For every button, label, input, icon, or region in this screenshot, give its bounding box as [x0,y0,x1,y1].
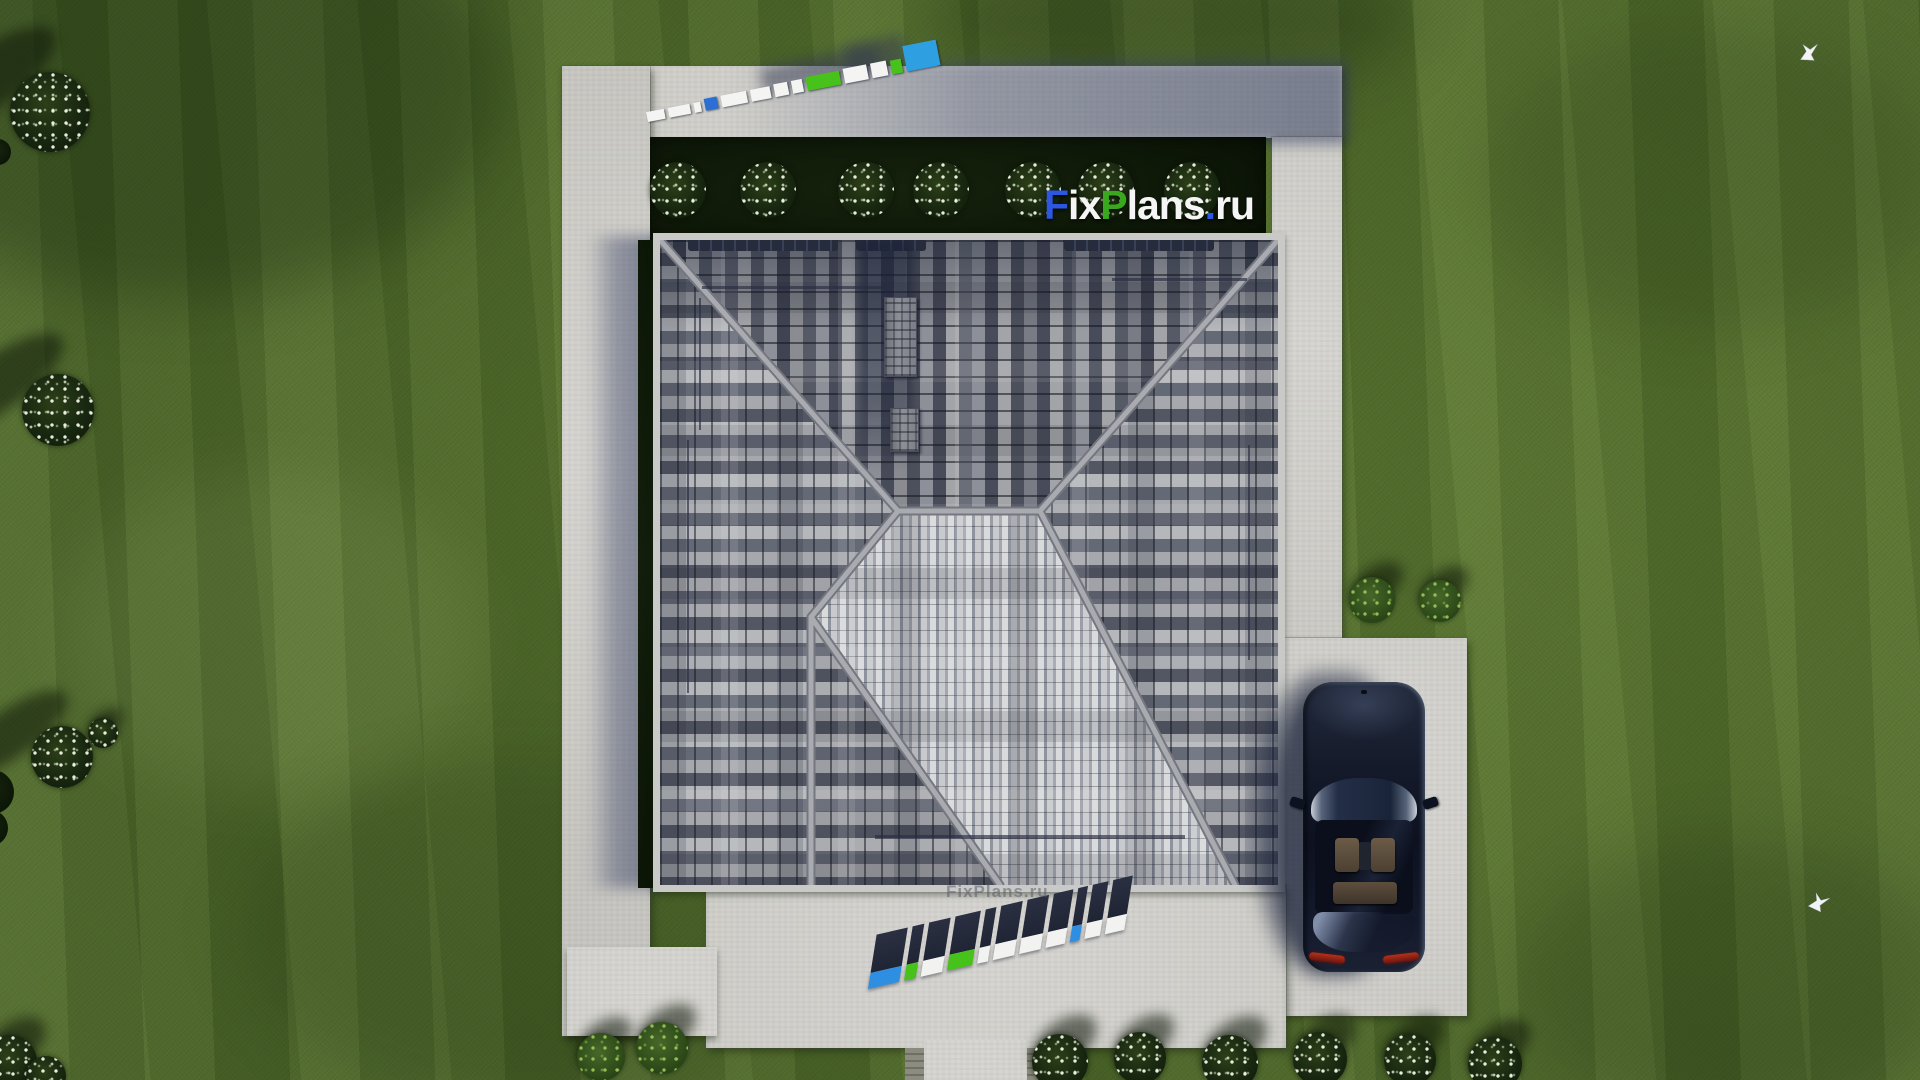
ridge-cap-tiles [1064,240,1214,251]
bird [1795,40,1823,69]
bird [1804,890,1833,919]
hedge-bush [838,162,894,218]
sign-letter-top [980,907,997,948]
car-antenna [1361,690,1367,694]
logo-letter: ru [1215,182,1254,228]
chimney [884,297,917,377]
logo-letter: ix [1068,182,1100,228]
sign-letter-top [949,911,980,955]
roof-vent [890,408,919,452]
sign-letter-face [1070,924,1082,942]
paved-path-left [562,66,650,1036]
hip-roof [660,240,1278,885]
sign-block [773,82,789,97]
bush-flower [88,718,118,748]
sign-letter-top [1048,889,1074,932]
paved-path-bottom [924,1040,1027,1080]
sign-letter [868,927,908,989]
sign-letter-face [977,945,990,963]
car-rear-seat [1333,882,1397,904]
ridge-cap-tiles [688,240,838,251]
snow-guard [1248,445,1250,660]
logo-letter: P [1100,182,1126,228]
bush-flower [1114,1032,1166,1080]
sign-letter [1019,895,1049,954]
sign-letter-top [1087,881,1109,923]
snow-guard [1112,278,1247,281]
car-console [1359,842,1371,870]
sign-letter-top [907,924,925,965]
snow-guard [687,440,689,693]
sign-letter-top [923,918,951,961]
car-roof-glass [1315,820,1413,914]
hedge-bush [650,162,706,218]
bush-flower [1384,1034,1436,1080]
gravel-strip-left [905,1048,924,1080]
aerial-render-scene: FixPlans.ru FixPlans.ru [0,0,1920,1080]
sign-letter [947,911,981,971]
bush-green [1419,580,1461,622]
sign-block [870,61,889,79]
logo-letter: lans [1127,182,1205,228]
fixplans-logo: FixPlans.ru [1044,182,1254,229]
snow-guard [875,835,1185,839]
bush-flower [10,72,90,152]
sign-block [693,102,702,113]
roof-fascia [653,233,1285,892]
sign-letter-top [871,927,908,973]
bush-flower [22,374,94,446]
bush-green [636,1022,688,1074]
bush-green [1349,577,1395,623]
logo-letter: F [1044,182,1068,228]
sign-letter [921,918,951,977]
snow-guard [702,286,887,289]
sign-letter [993,901,1023,960]
sign-letter-top [1072,886,1088,927]
car-seat [1335,838,1359,872]
sign-block [791,79,804,94]
roof-ridges [660,240,1278,885]
sign-letter-face [904,962,918,981]
bush-green [577,1033,625,1080]
bush-flower [31,726,93,788]
bush-flower [1293,1032,1347,1080]
parked-car [1303,682,1425,972]
snow-guard [699,298,701,430]
logo-letter: . [1205,182,1215,228]
sign-block [704,96,719,110]
sign-letter-top [995,901,1023,944]
sign-block [890,59,903,75]
car-seat [1371,838,1395,872]
hedge-bush [740,162,796,218]
hedge-bush [913,162,969,218]
faint-eave-watermark: FixPlans.ru [946,882,1049,902]
car-rear-window [1313,912,1415,952]
